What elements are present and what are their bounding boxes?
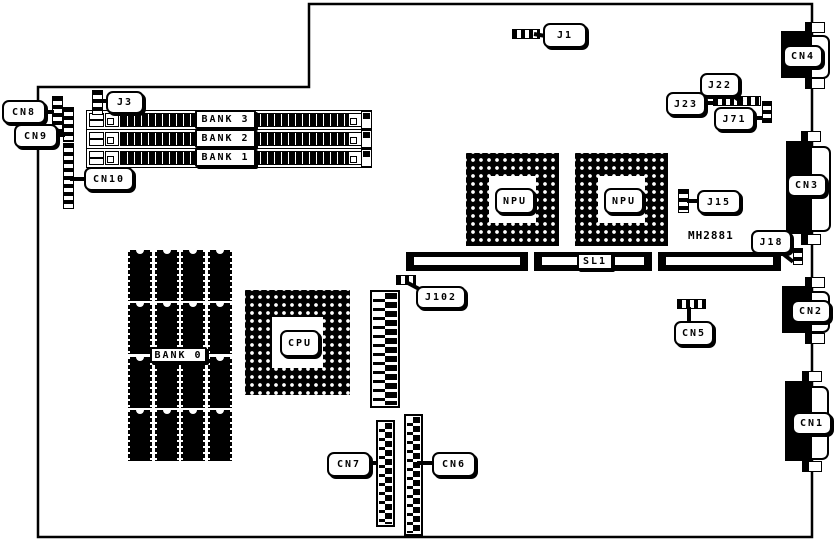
callout-cn9: CN9 bbox=[14, 124, 58, 148]
slot-sl1-segment-left bbox=[406, 252, 528, 271]
label-bank3: BANK 3 bbox=[195, 110, 256, 129]
callout-cn6: CN6 bbox=[432, 452, 476, 477]
part-number-text: MH2881 bbox=[688, 229, 734, 242]
simm-end-cap bbox=[361, 130, 372, 148]
memory-chip bbox=[181, 357, 205, 408]
memory-chip bbox=[181, 410, 205, 461]
simm-end-cap bbox=[361, 111, 372, 129]
simm-end-cap bbox=[361, 149, 372, 167]
header-cn10 bbox=[63, 143, 74, 209]
callout-cn4: CN4 bbox=[783, 45, 823, 68]
callout-tail bbox=[687, 307, 691, 322]
simm-pin-block bbox=[89, 139, 104, 146]
slot-sl1-segment-right bbox=[658, 252, 781, 271]
memory-chip bbox=[208, 250, 232, 301]
memory-chip bbox=[208, 410, 232, 461]
callout-cn1: CN1 bbox=[792, 412, 832, 435]
header-cn5 bbox=[677, 299, 706, 309]
simm-latch-right bbox=[348, 132, 362, 146]
simm-latch-left bbox=[105, 132, 119, 146]
label-npu-2: NPU bbox=[604, 188, 644, 214]
header-j18 bbox=[793, 248, 803, 265]
motherboard-diagram: BANK 3 BANK 2 BANK 1 CN8 CN9 CN10 J3 J1 … bbox=[0, 0, 834, 540]
callout-cn3: CN3 bbox=[787, 174, 827, 197]
memory-chip bbox=[208, 357, 232, 408]
simm-latch-left bbox=[105, 113, 119, 127]
memory-chip bbox=[155, 250, 179, 301]
callout-j15: J15 bbox=[697, 190, 741, 214]
simm-latch-right bbox=[348, 151, 362, 165]
callout-j3: J3 bbox=[106, 91, 144, 114]
power-connector-pins bbox=[373, 293, 386, 405]
memory-chip bbox=[128, 357, 152, 408]
callout-j102: J102 bbox=[416, 286, 466, 309]
label-npu-1: NPU bbox=[495, 188, 535, 214]
header-cn6-pins bbox=[413, 417, 420, 533]
callout-j18: J18 bbox=[751, 230, 792, 254]
label-bank2: BANK 2 bbox=[195, 129, 256, 148]
label-sl1: SL1 bbox=[577, 253, 613, 270]
cn2-screw-tab bbox=[805, 333, 825, 344]
header-j71 bbox=[762, 101, 772, 123]
memory-chip bbox=[128, 410, 152, 461]
callout-j22: J22 bbox=[700, 73, 740, 97]
callout-cn8: CN8 bbox=[2, 100, 46, 124]
label-bank1: BANK 1 bbox=[195, 148, 256, 167]
callout-cn2: CN2 bbox=[791, 300, 831, 323]
cn1-screw-tab bbox=[802, 371, 822, 382]
callout-cn5: CN5 bbox=[674, 321, 714, 346]
cn2-screw-tab bbox=[805, 277, 825, 288]
label-cpu: CPU bbox=[280, 330, 320, 357]
header-cn7 bbox=[376, 420, 395, 527]
simm-pin-block bbox=[89, 158, 104, 165]
power-connector-pins bbox=[385, 293, 397, 405]
header-cn7-pins bbox=[385, 423, 392, 524]
simm-pin-block bbox=[89, 132, 104, 139]
power-connector bbox=[370, 290, 400, 408]
cn4-screw-tab bbox=[805, 78, 825, 89]
simm-latch-right bbox=[348, 113, 362, 127]
header-cn6 bbox=[404, 414, 423, 536]
callout-j23: J23 bbox=[666, 92, 706, 116]
simm-latch-left bbox=[105, 151, 119, 165]
callout-j71: J71 bbox=[714, 107, 755, 131]
callout-cn7: CN7 bbox=[327, 452, 371, 477]
callout-j1: J1 bbox=[543, 23, 587, 48]
simm-pin-block bbox=[89, 120, 104, 127]
memory-chip bbox=[208, 303, 232, 354]
memory-chip bbox=[181, 250, 205, 301]
cn1-screw-tab bbox=[802, 461, 822, 472]
callout-cn10: CN10 bbox=[84, 167, 134, 191]
cn4-screw-tab bbox=[805, 22, 825, 33]
memory-chip bbox=[128, 250, 152, 301]
memory-chip bbox=[155, 357, 179, 408]
label-bank0: BANK 0 bbox=[150, 347, 207, 363]
memory-chip bbox=[155, 410, 179, 461]
cn3-screw-tab bbox=[801, 131, 821, 142]
memory-chip bbox=[128, 303, 152, 354]
cn3-screw-tab bbox=[801, 234, 821, 245]
simm-pin-block bbox=[89, 151, 104, 158]
